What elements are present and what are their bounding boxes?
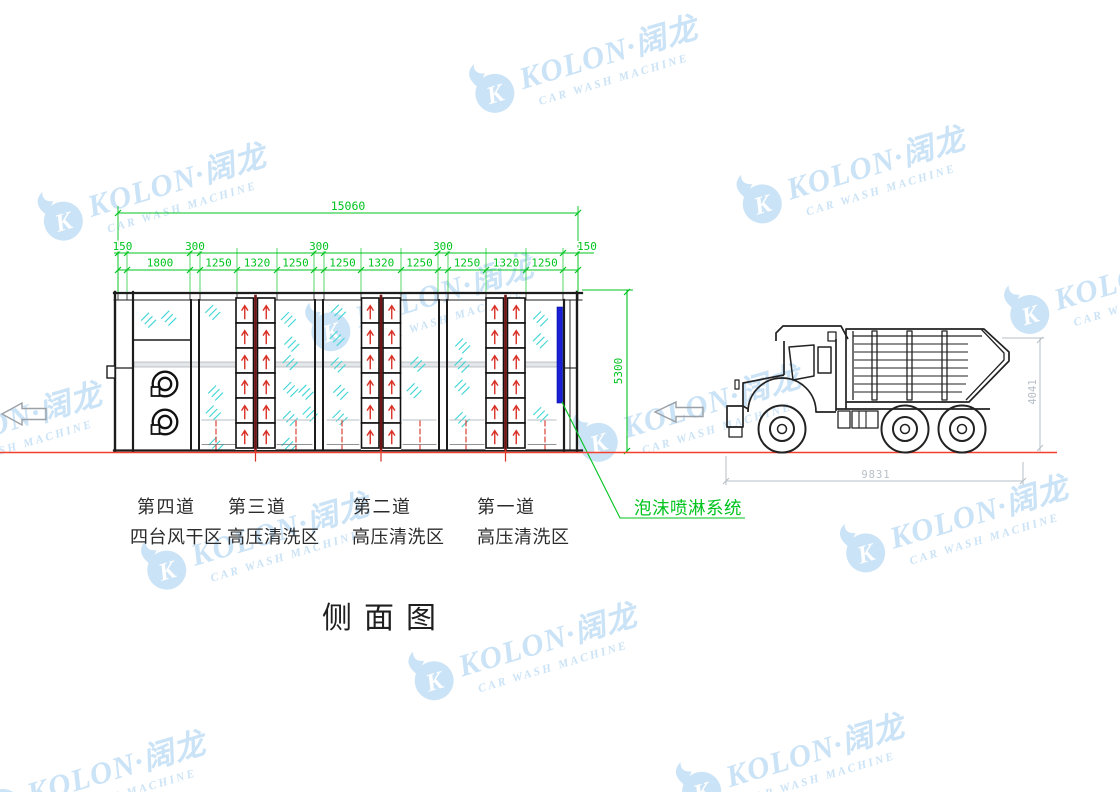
foam-spray-bar [557, 307, 563, 403]
truck-toolbox [838, 411, 850, 428]
glass-hatch [534, 312, 548, 326]
spray-stack-layer [236, 296, 526, 461]
watermark-logo: KKOLON·阔龙CAR WASH MACHINE [0, 715, 217, 792]
dim-row3: 1320 [493, 257, 520, 270]
glass-hatch [281, 313, 295, 327]
left-wall-notch [107, 366, 115, 378]
dim-row3: 1250 [205, 257, 232, 270]
view-title: 侧面图 [322, 601, 448, 636]
glass-hatch [333, 411, 347, 425]
glass-hatch [285, 337, 299, 351]
zone-name-label: 高压清洗区 [227, 527, 320, 548]
truck-side-window [818, 347, 831, 373]
dim-truck-length: 9831 [861, 469, 890, 481]
truck-wheel [939, 406, 986, 453]
drawing-page: KKOLON·阔龙CAR WASH MACHINEKKOLON·阔龙CAR WA… [0, 0, 1120, 792]
glass-hatch [456, 339, 470, 353]
watermark-brand: KOLON·阔龙 [0, 26, 6, 113]
truck-body-slats [854, 344, 968, 392]
watermark-logo: KKOLON·阔龙CAR WASH MACHINE [734, 110, 977, 235]
truck-tank [852, 411, 878, 428]
glass-hatch [206, 406, 220, 420]
dim-row3: 1250 [282, 257, 309, 270]
dim-row3: 1320 [368, 257, 395, 270]
watermark-logo: KKOLON·阔龙CAR WASH MACHINE [466, 0, 709, 125]
watermark-logo: KKOLON·阔龙CAR WASH MACHINE [0, 17, 10, 142]
truck-body-struts [872, 331, 947, 400]
glass-hatch [455, 380, 469, 394]
dim-row3: 1250 [454, 257, 481, 270]
logo-circle-icon [0, 784, 27, 792]
zone-name-label: 高压清洗区 [352, 527, 445, 548]
glass-hatch [283, 411, 297, 425]
blower-icon [152, 410, 178, 435]
watermark-brand: KOLON·阔龙 [1049, 230, 1120, 317]
spray-stack [361, 296, 401, 461]
glass-hatch [284, 382, 298, 396]
watermark-logo: KKOLON·阔龙CAR WASH MACHINE [0, 366, 114, 491]
dim-row2: 300 [309, 240, 329, 253]
glass-hatch [334, 385, 348, 399]
zone-lane-label: 第四道 [137, 497, 196, 518]
dim-tunnel-height: 5300 [612, 358, 625, 385]
glass-hatch [206, 305, 220, 319]
watermark-logo: KKOLON·阔龙CAR WASH MACHINE [1001, 221, 1120, 346]
glass-hatch [142, 313, 156, 327]
watermark-logo: KKOLON·阔龙CAR WASH MACHINE [35, 127, 278, 252]
zone-lane-label: 第二道 [353, 497, 412, 518]
truck-wheel [882, 406, 929, 453]
zone-lane-label: 第一道 [477, 497, 536, 518]
foam-callout-label: 泡沫喷淋系统 [634, 499, 742, 519]
glass-hatch [209, 386, 223, 400]
drying-bay [133, 340, 191, 434]
zone-lane-label: 第三道 [228, 497, 287, 518]
wash-tunnel [107, 292, 582, 461]
spray-stack [236, 296, 276, 461]
watermark-logo: KKOLON·阔龙CAR WASH MACHINE [570, 349, 813, 474]
glass-hatch [299, 385, 313, 399]
spray-stack [486, 296, 526, 461]
glass-hatch [407, 384, 421, 398]
dim-row3: 1250 [531, 257, 558, 270]
watermark-logo: KKOLON·阔龙CAR WASH MACHINE [673, 698, 916, 792]
dim-row3: 1250 [329, 257, 356, 270]
dim-row3: 1320 [244, 257, 271, 270]
zone-name-label: 高压清洗区 [477, 527, 570, 548]
dim-overall: 15060 [331, 199, 366, 213]
blower-icon [152, 372, 178, 397]
dim-row2: 150 [577, 240, 597, 253]
dim-row2: 300 [185, 240, 205, 253]
truck-dump-body [846, 329, 1009, 402]
dim-row3: 1250 [406, 257, 433, 270]
dim-row3: 1800 [147, 257, 174, 270]
dim-row2: 300 [433, 240, 453, 253]
glass-hatch [162, 311, 176, 325]
dim-truck-height: 4041 [1027, 379, 1039, 404]
zone-name-label: 四台风干区 [130, 527, 223, 548]
truck-canopy [776, 326, 848, 341]
truck-exhaust [828, 332, 836, 341]
glass-hatch [533, 334, 547, 348]
engineering-drawing: KKOLON·阔龙CAR WASH MACHINEKKOLON·阔龙CAR WA… [0, 0, 1120, 792]
dim-row2: 150 [113, 240, 133, 253]
